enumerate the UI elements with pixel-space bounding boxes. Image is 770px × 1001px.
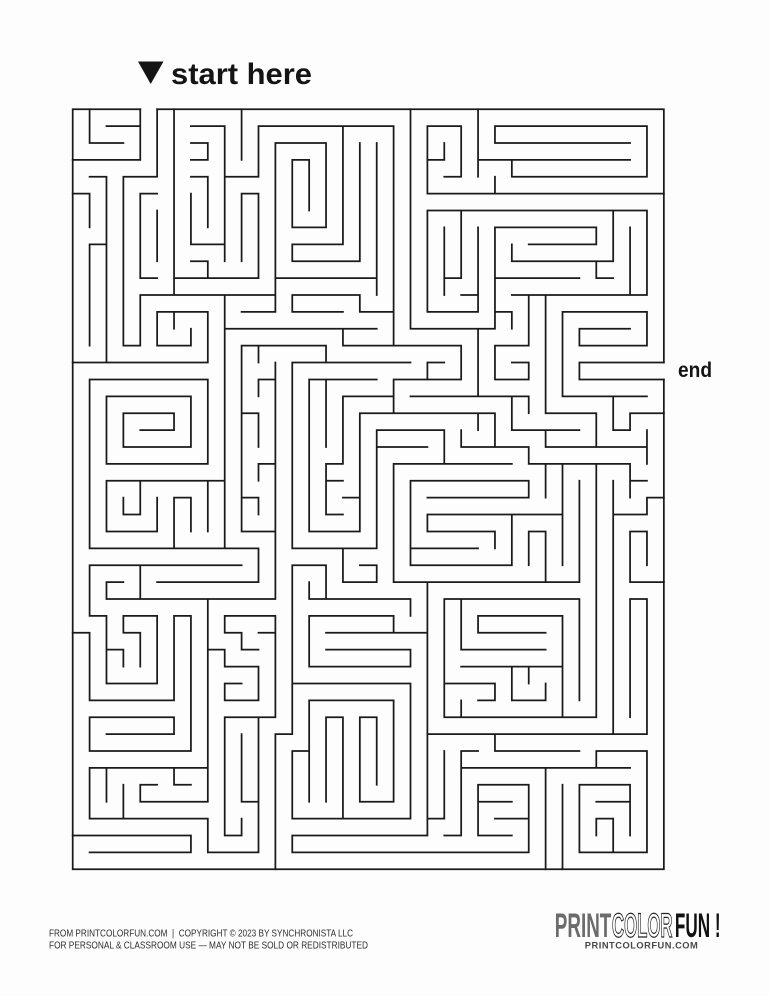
svg-text:COLOR: COLOR [612, 907, 673, 945]
svg-text:FROM PRINTCOLORFUN.COM | COP: FROM PRINTCOLORFUN.COM | COPYRIGHT © 202… [49, 929, 353, 940]
svg-text:PRINT: PRINT [555, 907, 612, 945]
svg-text:start here: start here [171, 58, 312, 91]
svg-text:FOR PERSONAL & CLASSROOM USE —: FOR PERSONAL & CLASSROOM USE — MAY NOT B… [49, 941, 368, 952]
svg-text:end: end [678, 359, 712, 382]
svg-text:PRINTCOLORFUN.COM: PRINTCOLORFUN.COM [585, 941, 698, 951]
svg-text:FUN !: FUN ! [675, 907, 721, 945]
